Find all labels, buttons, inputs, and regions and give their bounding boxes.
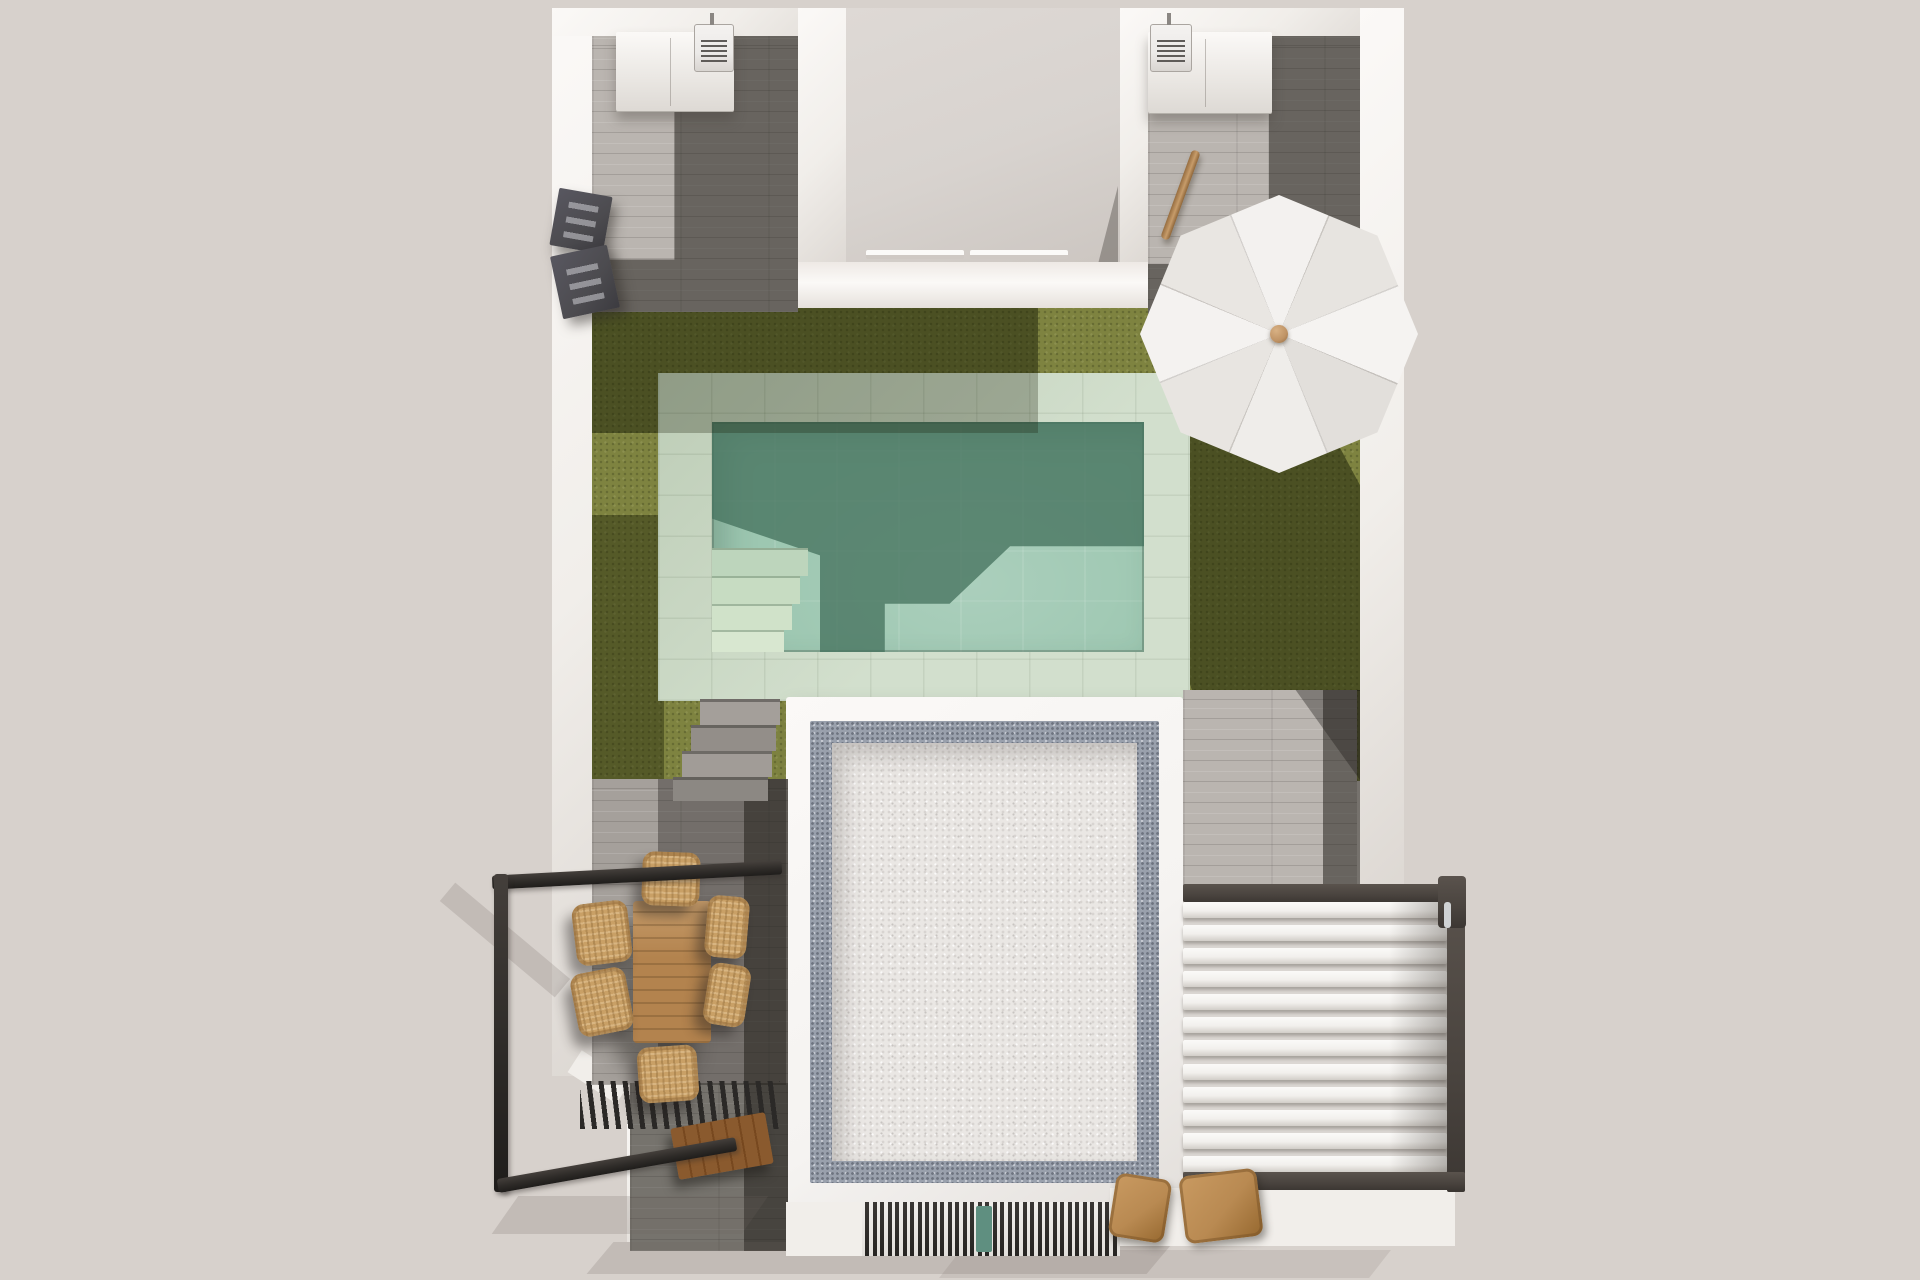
porch-railing-left — [494, 874, 508, 1192]
garden-step-4 — [673, 777, 768, 801]
dining-chair-left-1 — [570, 899, 633, 967]
pool-step-4 — [712, 630, 784, 652]
pool-step-1 — [712, 548, 808, 576]
patio-umbrella — [1140, 195, 1418, 473]
pool-step-2 — [712, 576, 800, 604]
dining-table — [633, 901, 711, 1043]
gate-panel-lower — [550, 245, 620, 320]
garden-step-2 — [691, 725, 776, 751]
dining-chair-left-2 — [568, 965, 635, 1039]
dining-chair-bottom — [636, 1044, 700, 1104]
garden-step-3 — [682, 751, 772, 777]
umbrella-center-knob — [1270, 325, 1288, 343]
dining-chair-right-2 — [701, 961, 752, 1029]
lounge-chair-left — [1107, 1172, 1172, 1244]
ac-unit-left — [694, 24, 734, 72]
garden-step-1 — [700, 699, 780, 725]
render-canvas — [0, 0, 1920, 1280]
lounge-chair-right — [1178, 1168, 1264, 1245]
dining-chair-right-1 — [703, 894, 750, 959]
door-mat — [976, 1206, 992, 1252]
pool-step-3 — [712, 604, 792, 630]
scene-objects-layer — [0, 0, 1920, 1280]
wood-pole — [1160, 149, 1201, 240]
ac-unit-right — [1150, 24, 1192, 72]
